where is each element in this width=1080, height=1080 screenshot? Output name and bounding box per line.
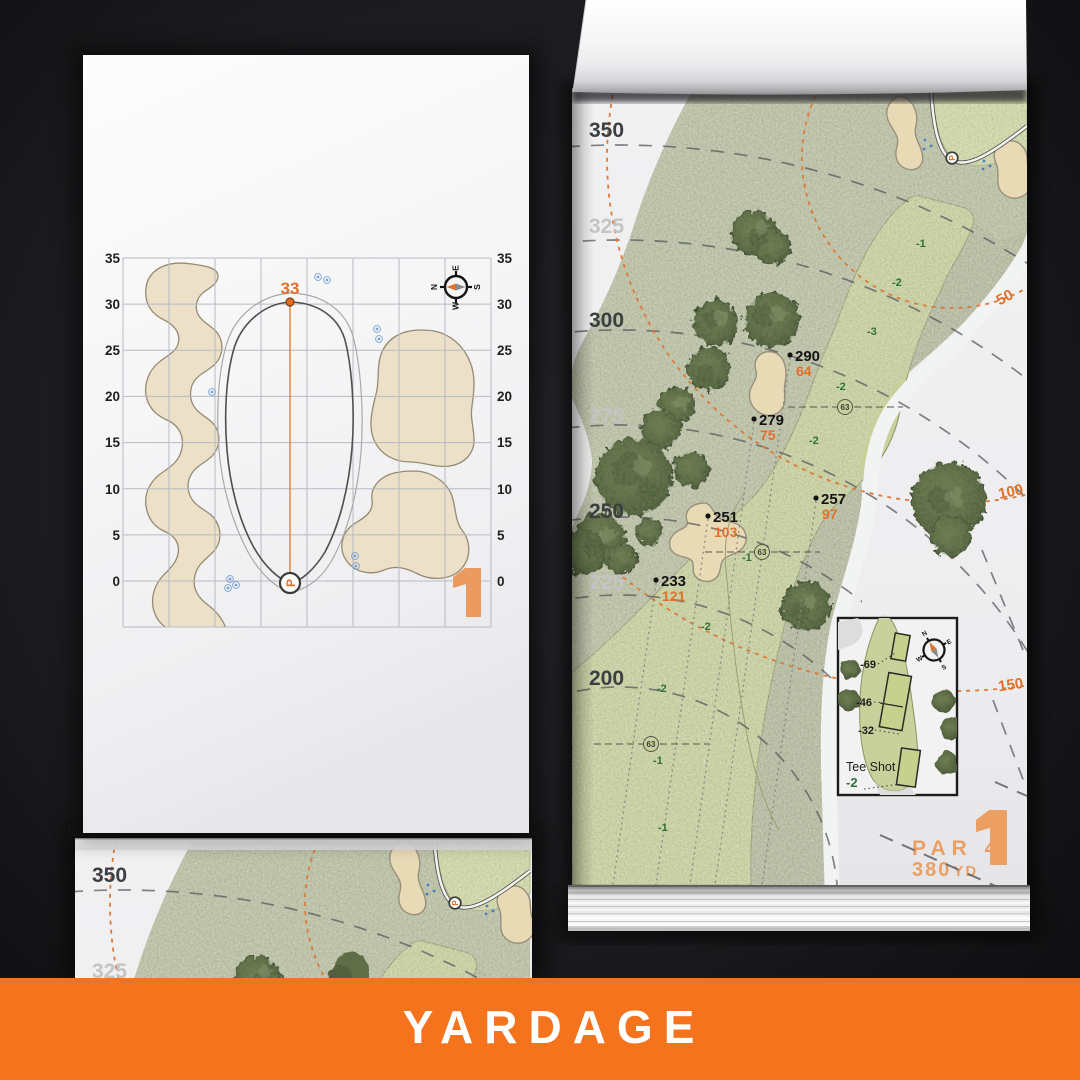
svg-text:30: 30 — [105, 297, 120, 312]
svg-text:W: W — [451, 301, 461, 310]
svg-text:5: 5 — [497, 528, 505, 543]
svg-text:5: 5 — [112, 528, 120, 543]
svg-text:YARDAGE: YARDAGE — [403, 1001, 706, 1053]
svg-text:E: E — [451, 265, 461, 271]
svg-text:S: S — [472, 284, 482, 290]
svg-text:20: 20 — [105, 389, 120, 404]
svg-text:35: 35 — [497, 251, 513, 266]
svg-text:20: 20 — [497, 389, 512, 404]
svg-text:N: N — [429, 284, 439, 290]
svg-text:10: 10 — [497, 482, 512, 497]
svg-text:35: 35 — [105, 251, 121, 266]
svg-text:15: 15 — [497, 435, 513, 450]
svg-text:P: P — [284, 579, 298, 587]
svg-text:10: 10 — [105, 482, 120, 497]
svg-text:30: 30 — [497, 297, 512, 312]
svg-text:15: 15 — [105, 435, 121, 450]
svg-text:33: 33 — [281, 279, 300, 298]
svg-text:25: 25 — [497, 343, 513, 358]
svg-text:0: 0 — [112, 574, 120, 589]
svg-text:0: 0 — [497, 574, 505, 589]
svg-text:25: 25 — [105, 343, 121, 358]
